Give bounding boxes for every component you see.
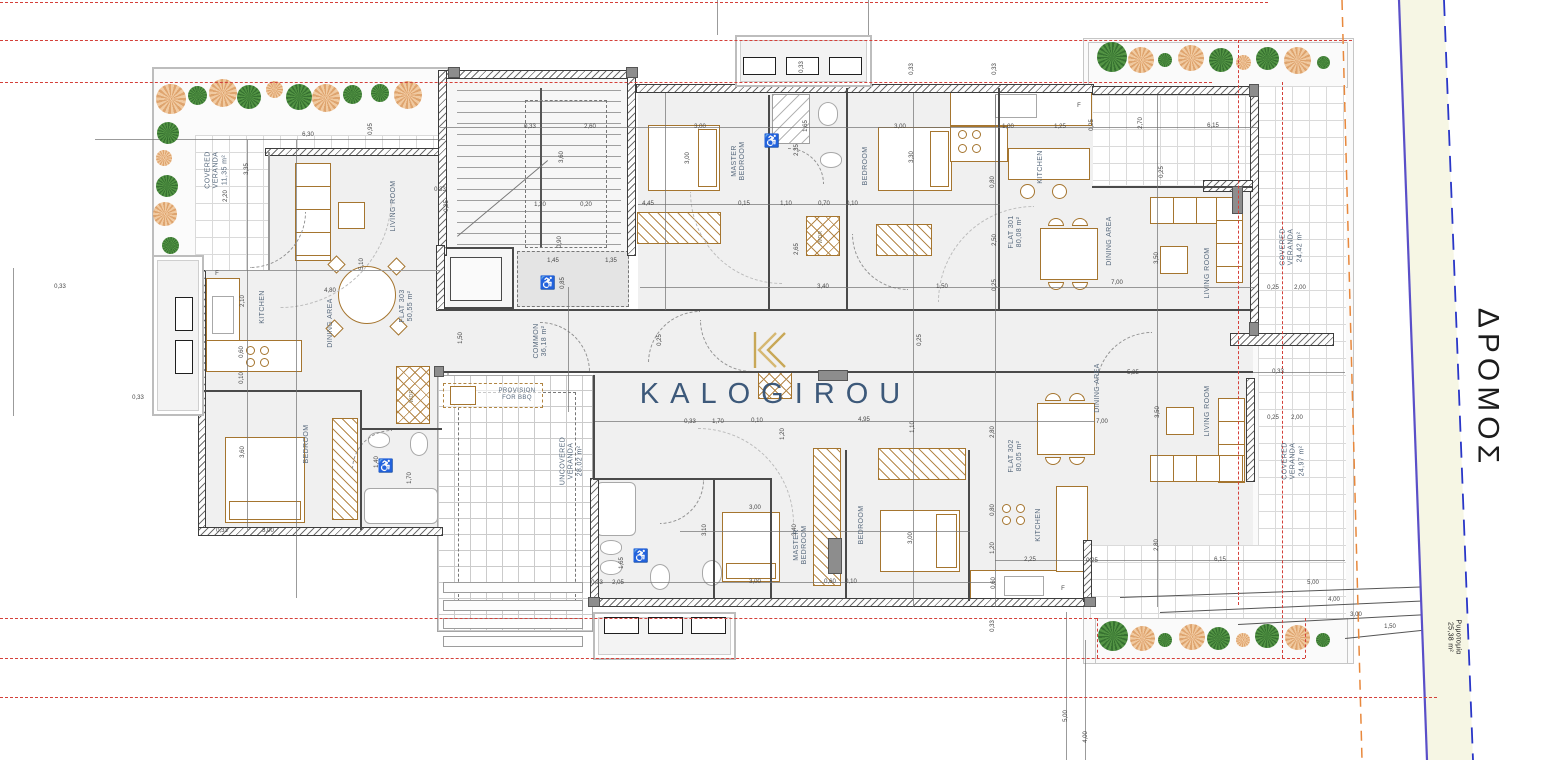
wheelchair-icon: ♿ — [764, 133, 780, 149]
wheelchair-icon: ♿ — [378, 458, 394, 474]
wheelchair-icon: ♿ — [540, 275, 556, 291]
watermark-brand-text: KALOGIROU — [629, 378, 911, 411]
kalogirou-logo-icon — [751, 330, 789, 370]
wheelchair-icon: ♿ — [633, 548, 649, 564]
floor-plan-page: { "watermark": {"brand": "KALOGIROU"}, "… — [0, 0, 1547, 760]
kalogirou-watermark: KALOGIROU — [560, 330, 980, 411]
